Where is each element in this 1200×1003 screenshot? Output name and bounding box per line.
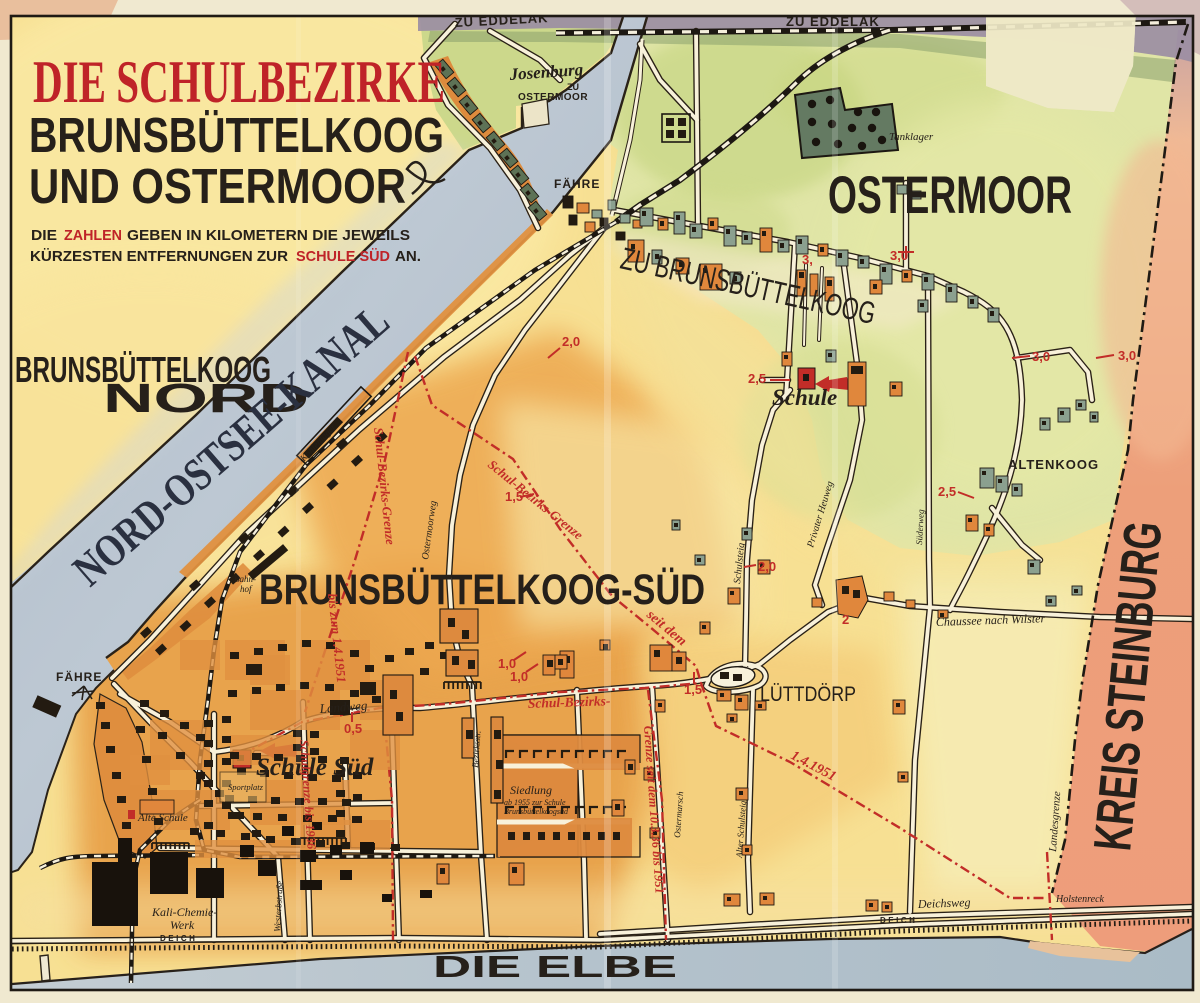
svg-text:FÄHRE: FÄHRE — [56, 669, 102, 684]
svg-text:KÜRZESTEN ENTFERNUNGEN ZUR: KÜRZESTEN ENTFERNUNGEN ZUR — [30, 248, 288, 265]
svg-text:UND OSTERMOOR: UND OSTERMOOR — [29, 160, 406, 214]
svg-text:Tanklager: Tanklager — [889, 131, 934, 143]
svg-text:ALTENKOOG: ALTENKOOG — [1008, 457, 1099, 472]
svg-text:DIE SCHULBEZIRKE: DIE SCHULBEZIRKE — [33, 49, 445, 115]
svg-text:DIE ELBE: DIE ELBE — [433, 949, 677, 984]
svg-text:ab 1955 zur Schule: ab 1955 zur Schule — [504, 798, 566, 807]
svg-text:1,0: 1,0 — [510, 669, 528, 684]
svg-text:Werk: Werk — [170, 918, 195, 932]
svg-text:Schule Süd: Schule Süd — [256, 754, 374, 781]
svg-text:OSTERMOOR: OSTERMOOR — [828, 166, 1072, 225]
svg-text:1,5: 1,5 — [505, 489, 523, 504]
svg-text:3,0: 3,0 — [1118, 348, 1136, 363]
svg-text:2,5: 2,5 — [748, 371, 766, 386]
svg-text:3,0: 3,0 — [1032, 349, 1050, 364]
svg-text:0,5: 0,5 — [344, 721, 362, 736]
svg-text:3,0: 3,0 — [890, 248, 908, 263]
svg-text:Holstenreck: Holstenreck — [1055, 894, 1105, 905]
svg-text:Schul-Bezirks-: Schul-Bezirks- — [528, 693, 611, 711]
svg-text:Brunsbüttelkoogsüd: Brunsbüttelkoogsüd — [504, 807, 569, 816]
svg-text:2,5: 2,5 — [938, 484, 956, 499]
svg-text:BRUNSBÜTTELKOOG-SÜD: BRUNSBÜTTELKOOG-SÜD — [259, 566, 705, 614]
svg-text:2,0: 2,0 — [758, 559, 776, 574]
svg-text:BRUNSBÜTTELKOOG: BRUNSBÜTTELKOOG — [29, 109, 444, 163]
svg-text:Süderweg: Süderweg — [914, 509, 926, 545]
svg-text:2,0: 2,0 — [562, 334, 580, 349]
svg-text:3,: 3, — [802, 252, 813, 267]
svg-text:Kali-Chemie-: Kali-Chemie- — [151, 905, 217, 919]
svg-text:Sportplatz: Sportplatz — [228, 782, 264, 792]
svg-text:DEICH: DEICH — [160, 934, 197, 943]
svg-text:FÄHRE: FÄHRE — [554, 176, 600, 191]
svg-text:Schule: Schule — [772, 385, 837, 410]
svg-text:Deichsweg: Deichsweg — [917, 895, 971, 911]
svg-text:GEBEN IN KILOMETERN DIE JEWEIL: GEBEN IN KILOMETERN DIE JEWEILS — [127, 227, 410, 244]
svg-text:ZU: ZU — [567, 82, 579, 92]
svg-text:2: 2 — [842, 612, 849, 627]
svg-text:Siedlung: Siedlung — [510, 783, 552, 797]
svg-text:OSTERMOOR: OSTERMOOR — [518, 92, 588, 103]
svg-text:Alte Schule: Alte Schule — [137, 812, 188, 824]
svg-text:SCHULE SÜD: SCHULE SÜD — [296, 248, 390, 265]
svg-text:DEICH: DEICH — [880, 916, 917, 925]
svg-text:DIE: DIE — [31, 227, 57, 244]
svg-text:1,5: 1,5 — [684, 682, 702, 697]
svg-text:hof: hof — [240, 584, 253, 594]
svg-text:AN.: AN. — [395, 248, 421, 265]
svg-text:ZAHLEN: ZAHLEN — [64, 227, 122, 244]
svg-text:LÜTTDÖRP: LÜTTDÖRP — [760, 683, 856, 706]
svg-text:Bahn-: Bahn- — [234, 574, 256, 584]
